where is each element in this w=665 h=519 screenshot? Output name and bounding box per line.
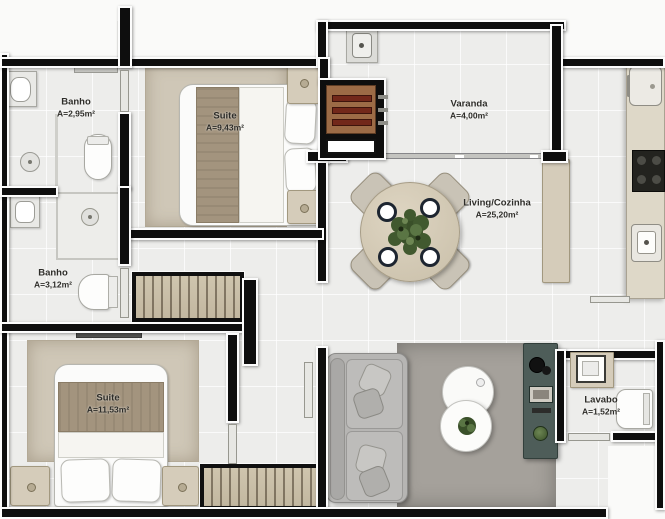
rack-plant-icon — [533, 426, 548, 441]
exterior-area — [0, 21, 117, 58]
room-label-lavabo: Lavabo A=1,52m² — [582, 394, 620, 417]
room-label-suite-2: Suite A=11,53m² — [87, 392, 129, 415]
banho1-door — [120, 70, 129, 112]
wall-segment — [0, 322, 250, 333]
banho1-toilet — [84, 134, 112, 180]
room-name: Banho — [57, 96, 95, 108]
room-area: A=9,43m² — [206, 123, 244, 134]
lavabo-sink — [576, 355, 606, 383]
wall-segment — [550, 24, 563, 155]
wall-segment — [655, 340, 665, 510]
banho2-sink — [10, 196, 40, 228]
living-hall-door — [304, 362, 313, 418]
banho2-shower — [56, 192, 120, 260]
room-name: Suite — [206, 110, 244, 122]
wall-segment — [555, 349, 566, 443]
kitchen-passage-door — [590, 296, 630, 303]
room-area: A=2,95m² — [57, 109, 95, 120]
banho2-toilet-tank — [108, 276, 118, 308]
room-name: Varanda — [450, 98, 488, 110]
coffee-table — [440, 400, 492, 452]
wall-segment — [124, 228, 324, 240]
room-label-varanda: Varanda A=4,00m² — [450, 98, 488, 121]
wall-segment — [0, 186, 58, 197]
room-label-suite-1: Suite A=9,43m² — [206, 110, 244, 133]
suite2-bed-sheet-fold — [58, 432, 164, 458]
fridge — [629, 66, 662, 106]
suite2-door — [228, 424, 237, 464]
floor-plan: Banho A=2,95m² Suite A=9,43m² Varanda A=… — [0, 0, 665, 519]
room-area: A=11,53m² — [87, 405, 129, 416]
suite1-bed-sheet-fold — [239, 87, 284, 223]
island-counter — [542, 159, 570, 283]
suite2-nightstand — [162, 466, 199, 506]
wall-segment — [0, 53, 9, 519]
suite2-wardrobe — [200, 464, 324, 510]
exterior-area — [563, 21, 665, 58]
tv-rack — [523, 343, 558, 459]
lavabo-door — [568, 433, 610, 441]
picture-frame-icon — [529, 386, 553, 403]
room-label-banho-1: Banho A=2,95m² — [57, 96, 95, 119]
table-plant-icon — [455, 414, 479, 438]
hall-wardrobe — [132, 272, 244, 322]
banho2-door — [120, 268, 129, 318]
grill-side-rack — [378, 92, 388, 132]
wall-segment — [0, 57, 326, 68]
wall-segment — [0, 507, 608, 519]
wall-segment — [316, 20, 566, 31]
centerpiece-plant-icon — [381, 203, 439, 261]
cooktop — [632, 150, 665, 192]
speaker-icon — [542, 366, 551, 375]
suite2-pillow — [111, 458, 161, 503]
wall-segment — [226, 333, 239, 423]
wall-segment — [118, 112, 131, 190]
exterior-area — [131, 21, 316, 58]
lavabo-toilet — [616, 389, 653, 429]
room-name: Suite — [87, 392, 129, 404]
banho1-shower-head — [20, 152, 40, 172]
room-name: Lavabo — [582, 394, 620, 406]
room-label-banho-2: Banho A=3,12m² — [34, 267, 72, 290]
room-area: A=4,00m² — [450, 111, 488, 122]
wall-segment — [316, 161, 328, 283]
room-area: A=25,20m² — [463, 210, 531, 221]
banho2-shower-head — [81, 208, 99, 226]
barbecue-grill — [326, 85, 376, 134]
suite1-bed-blanket — [196, 87, 239, 223]
kitchen-sink — [631, 224, 662, 262]
suite2-pillow — [60, 458, 110, 503]
banho2-toilet — [78, 274, 110, 310]
exterior-area — [0, 0, 665, 21]
suite1-pillow — [284, 98, 317, 145]
wall-segment — [118, 186, 131, 266]
room-area: A=1,52m² — [582, 407, 620, 418]
wall-segment — [554, 57, 665, 68]
wall-segment — [316, 346, 328, 511]
suite2-nightstand — [10, 466, 50, 506]
room-label-living-cozinha: Living/Cozinha A=25,20m² — [463, 197, 531, 220]
grill-shelf — [326, 139, 376, 154]
sofa — [326, 353, 408, 503]
varanda-sink — [346, 27, 378, 63]
banho1-shower-glass — [55, 114, 58, 186]
wall-segment — [242, 278, 258, 366]
room-name: Living/Cozinha — [463, 197, 531, 209]
room-name: Banho — [34, 267, 72, 279]
wall-segment — [118, 6, 132, 68]
room-area: A=3,12m² — [34, 280, 72, 291]
wall-segment — [541, 150, 568, 163]
